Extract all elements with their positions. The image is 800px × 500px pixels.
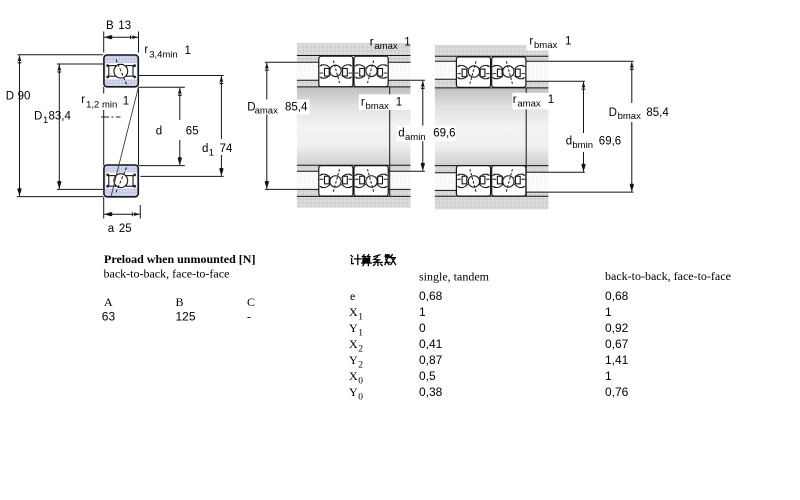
svg-text:85,4: 85,4	[285, 101, 308, 113]
svg-text:2: 2	[358, 345, 363, 355]
svg-text:1: 1	[396, 97, 402, 109]
svg-text:1: 1	[358, 329, 363, 339]
svg-text:bmin: bmin	[572, 140, 593, 151]
svg-text:0: 0	[358, 377, 363, 387]
svg-text:1: 1	[209, 147, 214, 158]
svg-text:bmax: bmax	[366, 101, 389, 112]
svg-text:13: 13	[118, 20, 131, 32]
svg-text:-: -	[247, 310, 251, 324]
svg-text:X: X	[349, 369, 358, 383]
svg-text:A: A	[104, 295, 113, 309]
svg-text:r: r	[144, 44, 148, 56]
svg-text:r: r	[513, 94, 517, 106]
svg-text:B: B	[106, 20, 114, 32]
svg-text:83,4: 83,4	[49, 110, 72, 122]
svg-text:back-to-back, face-to-face: back-to-back, face-to-face	[605, 269, 731, 283]
svg-text:amax: amax	[255, 106, 278, 117]
svg-text:0: 0	[358, 393, 363, 403]
svg-text:e: e	[350, 289, 355, 303]
svg-text:X: X	[349, 305, 358, 319]
svg-text:d: d	[398, 128, 404, 140]
svg-text:0,87: 0,87	[419, 353, 443, 367]
svg-text:1,2 min: 1,2 min	[86, 100, 117, 111]
svg-text:85,4: 85,4	[646, 107, 669, 119]
svg-text:1: 1	[404, 37, 410, 49]
svg-text:1: 1	[605, 369, 612, 383]
svg-text:r: r	[529, 35, 533, 47]
svg-text:d: d	[566, 136, 572, 148]
svg-text:amax: amax	[517, 99, 540, 110]
svg-text:single, tandem: single, tandem	[419, 270, 490, 284]
svg-text:1: 1	[123, 96, 129, 108]
svg-text:Y: Y	[349, 321, 358, 335]
svg-text:C: C	[247, 295, 255, 309]
svg-text:3,4min: 3,4min	[149, 50, 178, 61]
svg-text:2: 2	[358, 361, 363, 371]
svg-text:90: 90	[18, 91, 31, 103]
svg-text:125: 125	[176, 310, 196, 324]
svg-text:amin: amin	[405, 132, 426, 143]
svg-text:0,38: 0,38	[419, 385, 443, 399]
svg-text:63: 63	[102, 310, 116, 324]
svg-text:69,6: 69,6	[599, 136, 621, 148]
svg-text:amax: amax	[374, 41, 397, 52]
svg-text:1: 1	[419, 305, 426, 319]
svg-text:65: 65	[186, 126, 199, 138]
svg-text:69,6: 69,6	[433, 128, 455, 140]
svg-text:1,41: 1,41	[605, 353, 629, 367]
svg-text:D: D	[6, 91, 14, 103]
svg-text:back-to-back, face-to-face: back-to-back, face-to-face	[104, 267, 230, 281]
svg-text:25: 25	[119, 223, 132, 235]
svg-text:1: 1	[605, 305, 612, 319]
svg-text:0,92: 0,92	[605, 321, 629, 335]
svg-text:d: d	[202, 143, 208, 155]
svg-text:74: 74	[220, 143, 233, 155]
svg-text:1: 1	[548, 94, 554, 106]
svg-text:1: 1	[185, 45, 191, 57]
svg-text:Preload when unmounted [N]: Preload when unmounted [N]	[104, 252, 255, 266]
svg-text:0,67: 0,67	[605, 337, 629, 351]
svg-text:0,5: 0,5	[419, 369, 436, 383]
svg-text:r: r	[81, 94, 85, 106]
svg-text:bmax: bmax	[534, 40, 557, 51]
svg-text:B: B	[176, 295, 184, 309]
svg-text:1: 1	[358, 313, 363, 323]
svg-text:1: 1	[565, 35, 571, 47]
svg-text:Y: Y	[349, 353, 358, 367]
svg-text:0: 0	[419, 321, 426, 335]
svg-text:X: X	[349, 337, 358, 351]
svg-text:0,76: 0,76	[605, 385, 629, 399]
svg-text:D: D	[609, 107, 617, 119]
svg-text:D: D	[34, 110, 42, 122]
svg-text:a: a	[108, 223, 115, 235]
svg-text:r: r	[370, 37, 374, 49]
svg-text:0,68: 0,68	[605, 289, 629, 303]
svg-text:d: d	[156, 126, 162, 138]
svg-text:r: r	[361, 97, 365, 109]
svg-text:0,41: 0,41	[419, 337, 443, 351]
svg-text:0,68: 0,68	[419, 289, 443, 303]
svg-text:Y: Y	[349, 385, 358, 399]
svg-text:bmax: bmax	[618, 111, 641, 122]
svg-text:1: 1	[43, 115, 48, 126]
